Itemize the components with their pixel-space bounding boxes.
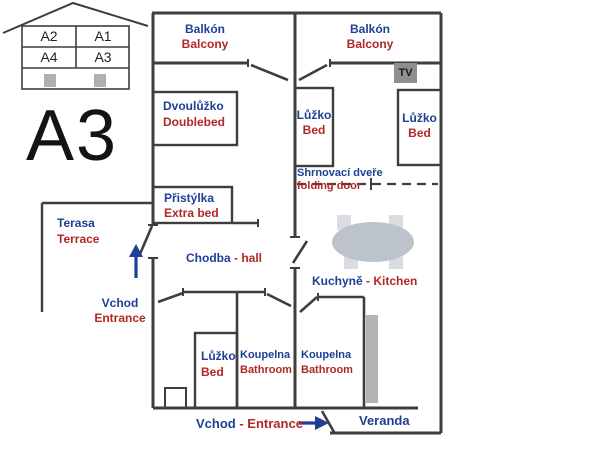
label-entrance-side: Vchod Entrance xyxy=(92,296,148,326)
bathroom-2-en: Bathroom xyxy=(301,364,353,376)
hall-sep: - xyxy=(231,251,242,265)
legend-unit-a2: A2 xyxy=(23,28,75,44)
bed-right-1-cz: Lůžko xyxy=(297,108,332,122)
label-veranda: Veranda xyxy=(359,413,410,429)
balcony-right-en: Balcony xyxy=(347,37,394,51)
kitchen-cz: Kuchyně xyxy=(312,274,363,288)
label-doublebed: Dvoulůžko Doublebed xyxy=(163,98,225,130)
bathroom2-door xyxy=(300,297,317,312)
kitchen-table xyxy=(332,222,414,262)
apartment-title: A3 xyxy=(26,100,118,172)
hall-center-door xyxy=(293,241,307,263)
floorplan-page: A2 A1 A4 A3 A3 TV Balkón Balcony Balkón … xyxy=(0,0,600,450)
balcony-left-door xyxy=(251,65,288,80)
label-bathroom-1: Koupelna Bathroom xyxy=(240,348,292,378)
entrance-bottom-cz: Vchod xyxy=(196,416,236,431)
doublebed-cz: Dvoulůžko xyxy=(163,99,224,113)
balcony-left-en: Balcony xyxy=(182,37,229,51)
hall-cz: Chodba xyxy=(186,251,231,265)
label-bed-right-1: Lůžko Bed xyxy=(295,108,333,138)
label-bathroom-2: Koupelna Bathroom xyxy=(301,348,353,378)
kitchen-sep: - xyxy=(363,274,374,288)
folding-door-cz: Shrnovací dveře xyxy=(297,167,383,179)
doublebed-en: Doublebed xyxy=(163,115,225,129)
entrance-side-cz: Vchod xyxy=(102,296,139,310)
hall-right-door xyxy=(267,294,291,306)
legend-unit-a3: A3 xyxy=(77,49,129,65)
bathroom-1-cz: Koupelna xyxy=(240,349,290,361)
balcony-right-cz: Balkón xyxy=(350,22,390,36)
bed-right-2-cz: Lůžko xyxy=(402,111,437,125)
entrance-bottom-sep: - xyxy=(236,416,248,431)
balcony-right-door xyxy=(299,65,327,80)
label-balcony-left: Balkón Balcony xyxy=(160,22,250,52)
bed-right-2-en: Bed xyxy=(408,126,431,140)
label-bed-right-2: Lůžko Bed xyxy=(398,111,441,141)
bed-bottom-cz: Lůžko xyxy=(201,349,236,363)
label-entrance-bottom: Vchod - Entrance xyxy=(196,416,303,432)
entrance-right-arrow xyxy=(299,416,329,430)
hall-en: hall xyxy=(241,251,262,265)
shower-strip xyxy=(366,315,378,403)
kitchen-en: Kitchen xyxy=(373,274,417,288)
hall-left-door xyxy=(158,293,183,302)
label-folding-door: Shrnovací dveře folding door xyxy=(297,167,383,193)
terrace-en: Terrace xyxy=(57,232,99,246)
entrance-door xyxy=(140,226,152,254)
label-kitchen: Kuchyně - Kitchen xyxy=(312,274,417,289)
house-door-squares xyxy=(44,74,106,87)
folding-door-en: folding door xyxy=(297,180,361,192)
label-balcony-right: Balkón Balcony xyxy=(325,22,415,52)
legend-unit-a4: A4 xyxy=(23,49,75,65)
label-hall: Chodba - hall xyxy=(186,251,262,266)
entrance-bottom-en: Entrance xyxy=(247,416,303,431)
tv-label: TV xyxy=(398,67,412,79)
terrace-cz: Terasa xyxy=(57,216,95,230)
tv-box: TV xyxy=(394,63,417,83)
label-extra-bed: Přistýlka Extra bed xyxy=(164,191,219,221)
veranda-cz: Veranda xyxy=(359,413,410,428)
entrance-side-en: Entrance xyxy=(94,311,145,325)
label-terrace: Terasa Terrace xyxy=(57,215,99,247)
extra-bed-en: Extra bed xyxy=(164,206,219,220)
label-bed-bottom: Lůžko Bed xyxy=(201,348,236,380)
bathroom-2-cz: Koupelna xyxy=(301,349,351,361)
legend-unit-a1: A1 xyxy=(77,28,129,44)
house-legend-icon xyxy=(3,3,148,89)
bed-right-1-en: Bed xyxy=(303,123,326,137)
bathroom-1-en: Bathroom xyxy=(240,364,292,376)
balcony-left-cz: Balkón xyxy=(185,22,225,36)
extra-bed-cz: Přistýlka xyxy=(164,191,214,205)
bed-bottom-en: Bed xyxy=(201,365,224,379)
closet-rect xyxy=(165,388,186,408)
